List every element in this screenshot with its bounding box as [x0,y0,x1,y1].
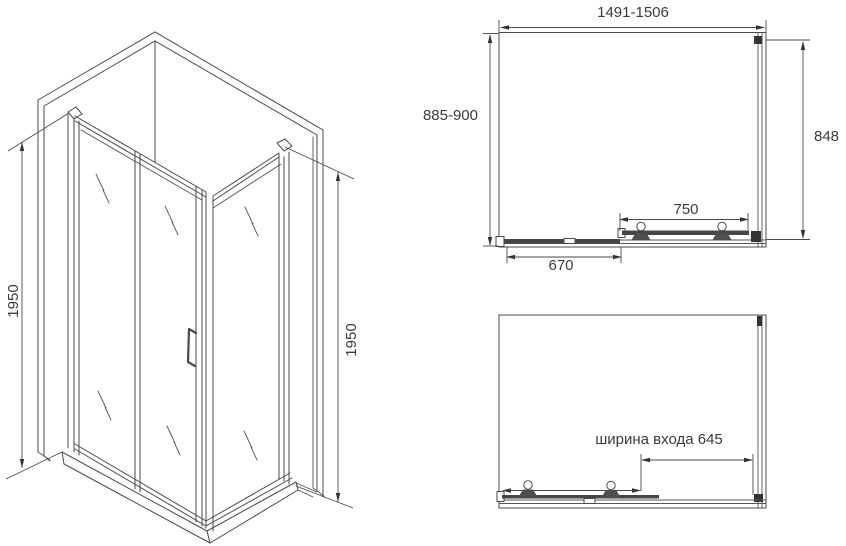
wall-profile-block [754,494,763,502]
fixed-panel-width-label: 670 [531,258,591,274]
inner-depth-label: 848 [814,129,846,145]
iso-enclosure-frame [68,107,292,531]
fixed-panel-end-cap [496,237,504,247]
iso-height-right-label: 1950 [344,318,360,362]
iso-view-drawing [6,32,354,543]
iso-height-left-label: 1950 [6,279,22,323]
panel-connector [584,499,595,504]
door-width-label: 750 [656,202,716,218]
wall-profile-block [757,316,762,326]
technical-drawing-canvas: 1950 1950 1491-1506 885-900 848 750 670 … [0,0,846,546]
door-right-cap [751,231,761,242]
fixed-panel [504,239,620,244]
plan-open-drawing [497,315,766,508]
dim-entrance-width [641,454,753,495]
drawing-lines [0,0,846,546]
depth-label: 885-900 [406,108,478,124]
door-handle-icon [188,329,196,366]
iso-walls [38,32,324,497]
roller-icon [602,481,620,497]
overall-width-label: 1491-1506 [563,5,703,21]
panel-connector [564,239,575,244]
roller-icon [519,481,537,497]
entrance-width-label: ширина входа 645 [559,432,759,448]
dim-depth [483,34,499,247]
glass-reflection-marks [96,174,258,460]
dim-inner-depth [766,40,810,240]
plan-closed-drawing [483,20,810,263]
dim-overall-width [499,20,766,32]
wall-profile-block [754,36,762,44]
